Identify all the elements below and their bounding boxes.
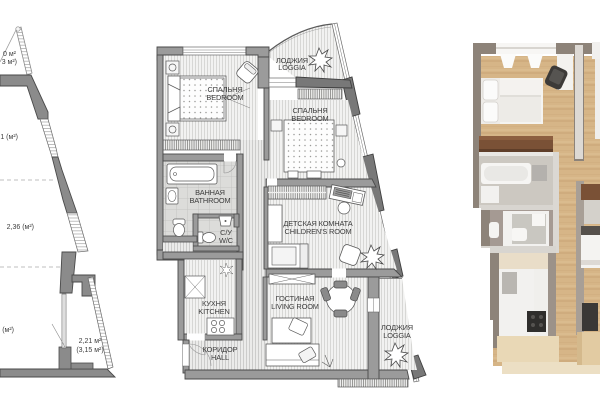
- svg-text:LIVING ROOM: LIVING ROOM: [271, 302, 319, 311]
- svg-text:LOGGIA: LOGGIA: [278, 63, 306, 72]
- svg-text:KITCHEN: KITCHEN: [198, 307, 229, 316]
- svg-text:HALL: HALL: [211, 353, 229, 362]
- svg-text:LOGGIA: LOGGIA: [383, 331, 411, 340]
- svg-text:W/C: W/C: [219, 236, 234, 245]
- svg-text:(3,15 м²): (3,15 м²): [76, 347, 103, 354]
- svg-text:(м²): (м²): [2, 327, 14, 334]
- svg-text:BEDROOM: BEDROOM: [206, 93, 243, 102]
- svg-text:BATHROOM: BATHROOM: [190, 196, 231, 205]
- svg-text:3 м²): 3 м²): [2, 59, 17, 66]
- svg-text:2,21 м²: 2,21 м²: [79, 338, 102, 345]
- svg-text:0 м²: 0 м²: [3, 51, 17, 58]
- svg-text:2,36 (м²): 2,36 (м²): [7, 224, 34, 231]
- svg-text:BEDROOM: BEDROOM: [291, 114, 328, 123]
- svg-text:CHILDREN'S ROOM: CHILDREN'S ROOM: [285, 227, 352, 236]
- svg-text:1 (м²): 1 (м²): [0, 134, 18, 141]
